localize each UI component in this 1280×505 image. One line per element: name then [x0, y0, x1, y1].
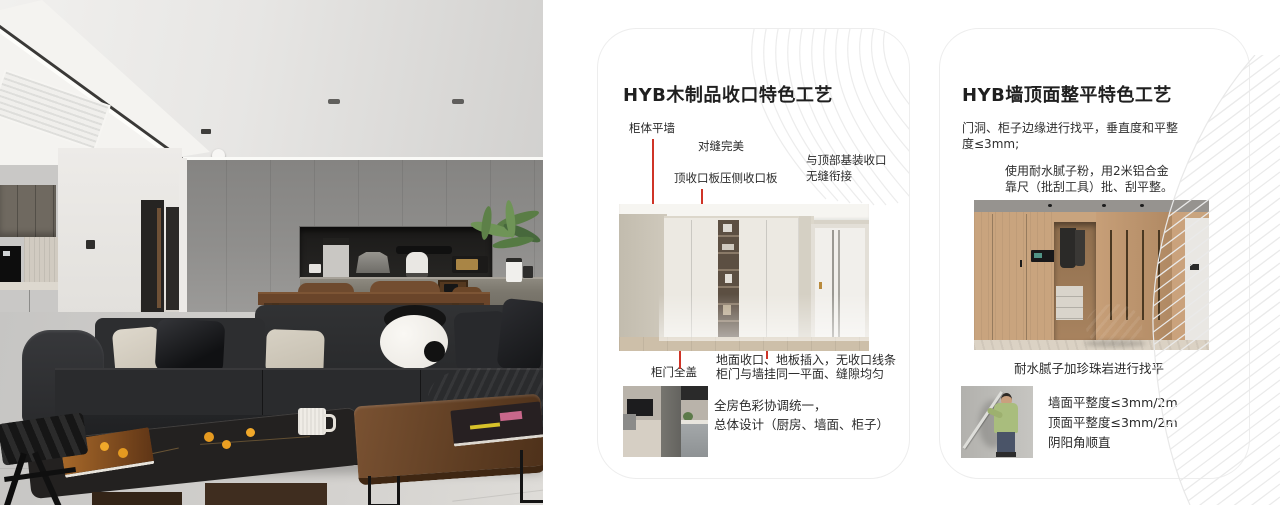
cabinet-render-image [619, 204, 869, 351]
plant-vase [506, 258, 522, 282]
pillow-black-leather [155, 318, 226, 374]
wood-wall-left [974, 212, 1054, 342]
callout-door-full-cover: 柜门全盖 [651, 364, 697, 380]
summary-line1: 全房色彩协调统一， [714, 395, 827, 414]
hidden-door-seam [992, 214, 993, 340]
hanging-clothes [1075, 230, 1085, 266]
drawer-unit [1056, 286, 1083, 320]
callout-top-joint-line1: 与顶部基装收口 [806, 152, 887, 168]
image-caption: 耐水腻子加珍珠岩进行找平 [1014, 358, 1164, 377]
bean-bag-shadow [1084, 340, 1146, 347]
table-metal-leg [368, 476, 400, 505]
hidden-door-seam [1026, 214, 1027, 340]
orange-fruit [204, 432, 214, 442]
thumb-lower-cabinet [681, 424, 708, 457]
glass-door-handle [1190, 264, 1199, 270]
room-thumbnail [623, 386, 708, 457]
photo-downlight [1048, 204, 1052, 207]
brochure-page: HYB木制品收口特色工艺 柜体平墙 对缝完美 顶收口板压侧收口板 与顶部基装收口… [0, 0, 1280, 505]
door-wood-edge [157, 208, 161, 308]
card-title: HYB木制品收口特色工艺 [623, 81, 833, 107]
downlight [328, 99, 340, 104]
photo-ceiling [974, 200, 1209, 212]
note-line2: 柜门与墙挂同一平面、缝隙均匀 [716, 367, 896, 381]
ceiling-sensor [201, 129, 211, 134]
wardrobe-handle-groove [1158, 230, 1160, 320]
capsule-coffee-machine [406, 252, 428, 277]
kitchen-upper-cabinets [0, 185, 56, 237]
callout-top-joint: 与顶部基装收口 无缝衔接 [806, 152, 887, 184]
orange-fruit [100, 442, 109, 451]
moka-pots [356, 252, 390, 273]
smart-panel-screen [1034, 253, 1042, 258]
para1-line1: 门洞、柜子边缘进行找平，垂直度和平整 [962, 120, 1178, 136]
woven-stool [0, 410, 95, 505]
card-title: HYB墙顶面整平特色工艺 [962, 81, 1172, 107]
thumb-sofa [623, 414, 636, 430]
worker-thumbnail [961, 386, 1033, 458]
kitchen-countertop [0, 282, 58, 290]
white-door [1185, 218, 1209, 342]
kitchen-backsplash [24, 237, 58, 283]
orange-fruit [222, 440, 231, 449]
wardrobe-photo [974, 200, 1209, 350]
shelf-item [722, 244, 734, 250]
table-metal-leg [520, 450, 543, 503]
mug-handle [324, 414, 336, 432]
orange-fruit [246, 428, 255, 437]
callout-top-board: 顶收口板压侧收口板 [674, 170, 778, 186]
worker-legs [997, 432, 1015, 453]
note-line1: 地面收口、地板插入，无收口线条 [716, 353, 896, 367]
thumb-cabinet-column [661, 386, 681, 457]
espresso-machine [323, 238, 349, 280]
potted-plant [462, 200, 543, 280]
para2-line2: 靠尺（批刮工具）批、刮平整。 [1005, 179, 1173, 195]
thumb-appliance [681, 386, 708, 400]
shelf-item [725, 274, 732, 283]
photo-downlight [1140, 204, 1144, 207]
coffee-cup [309, 264, 321, 273]
spec-corners: 阴阳角顺直 [1048, 432, 1111, 451]
card-wall-leveling: HYB墙顶面整平特色工艺 门洞、柜子边缘进行找平，垂直度和平整 度≤3mm; 使… [939, 28, 1250, 479]
card-wood-finish: HYB木制品收口特色工艺 柜体平墙 对缝完美 顶收口板压侧收口板 与顶部基装收口… [597, 28, 910, 479]
worker-shoes [996, 452, 1016, 457]
panda-eye-patch [424, 341, 445, 362]
white-mug [298, 408, 326, 435]
panda-cushion [380, 303, 454, 373]
render-light-glow [659, 294, 869, 341]
shelf-item [723, 224, 732, 232]
finish-notes: 地面收口、地板插入，无收口线条 柜门与墙挂同一平面、缝隙均匀 [716, 353, 896, 381]
photo-downlight [1102, 204, 1106, 207]
spec-ceiling-flatness: 顶面平整度≤3mm/2m [1048, 412, 1178, 431]
door-handle-gold [819, 282, 822, 289]
hanging-clothes [1060, 228, 1076, 268]
door-dark [166, 207, 180, 310]
paragraph-leveling: 门洞、柜子边缘进行找平，垂直度和平整 度≤3mm; [962, 120, 1178, 152]
plant-pot-small [523, 266, 533, 278]
stone-table-base [205, 483, 327, 505]
door-frame-right [1172, 212, 1185, 342]
spec-wall-flatness: 墙面平整度≤3mm/2m [1048, 392, 1178, 411]
coffee-machine-screen [3, 251, 10, 256]
stone-table-base [92, 492, 182, 505]
callout-seam-perfect: 对缝完美 [698, 138, 744, 154]
callout-cabinet-wall: 柜体平墙 [629, 120, 675, 136]
wall-corner-trim [179, 158, 187, 334]
pillow-black [496, 298, 543, 372]
living-room-photo [0, 0, 543, 505]
summary-line2: 总体设计（厨房、墙面、柜子） [714, 414, 889, 433]
worker-torso [994, 403, 1018, 433]
wardrobe-handle-groove [1142, 230, 1144, 320]
door-handle-black [1020, 260, 1022, 267]
downlight [452, 99, 464, 104]
para1-line2: 度≤3mm; [962, 136, 1178, 152]
orange-fruit [118, 448, 128, 458]
para2-line1: 使用耐水腻子粉，用2米铝合金 [1005, 163, 1173, 179]
paragraph-putty: 使用耐水腻子粉，用2米铝合金 靠尺（批刮工具）批、刮平整。 [1005, 163, 1173, 195]
callout-top-joint-line2: 无缝衔接 [806, 168, 887, 184]
light-switch [86, 240, 95, 249]
